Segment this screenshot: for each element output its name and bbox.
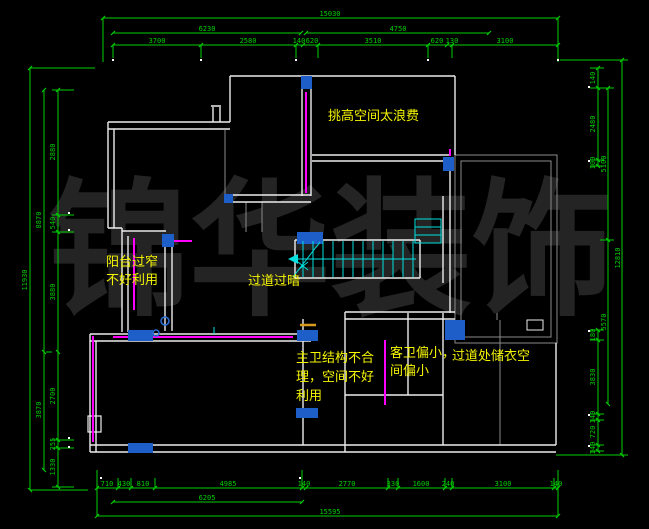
ref-dot [68,229,70,231]
blue-fill [445,320,465,340]
dim-label: 620 [306,37,319,45]
ref-dot [299,477,301,479]
annotation-master-bath-2: 理，空间不好 [296,370,374,385]
dim-label: 240 [442,480,455,488]
ref-dot [588,445,590,447]
dim-label: 430 [118,480,131,488]
dim-label: 2880 [49,144,57,161]
blue-fill [128,443,153,453]
ref-dot [295,59,297,61]
annotation-balcony-2: 不好利用 [106,273,158,288]
dim-label: 3700 [149,37,166,45]
ref-dot [588,86,590,88]
dim-label: 140 [589,72,597,85]
dim-label: 5100 [600,156,608,173]
annotation-guest-bath-2: 间偏小 [390,364,429,379]
dim-label: 100 [589,157,597,170]
blue-fill [443,157,454,171]
annotation-master-bath-3: 利用 [296,389,322,404]
ref-dot [588,414,590,416]
dim-label: 3870 [35,402,43,419]
dim-label: 4750 [390,25,407,33]
dim-label: 2770 [339,480,356,488]
ref-dot [112,59,114,61]
dim-label: 3510 [365,37,382,45]
dim-label: 330 [387,480,400,488]
dim-label: 710 [101,480,114,488]
dim-label: 180 [589,329,597,342]
ref-dot [68,437,70,439]
blue-fill [301,76,312,89]
blue-fill [297,232,323,244]
dim-label: 4985 [220,480,237,488]
dim-label: 6230 [199,25,216,33]
ref-dot [588,160,590,162]
dim-label: 140 [589,442,597,455]
dim-label-right-outer: 12810 [614,247,622,268]
ref-dot [588,330,590,332]
watermark-text: 锦华装饰 [48,163,613,337]
dim-label: 2480 [589,116,597,133]
cad-drawing-canvas: 锦华装饰 15030 6230 4750 3700 2580 140 620 3… [0,0,649,529]
dim-label-left-outer: 11930 [21,269,29,290]
dim-label: 1600 [413,480,430,488]
dim-label: 810 [137,480,150,488]
annotation-balcony-1: 阳台过窄 [106,254,158,270]
dim-label: 540 [49,217,57,230]
blue-fill [224,194,233,203]
dim-label: 720 [589,426,597,439]
annotation-master-bath-1: 主卫结构不合 [296,351,374,366]
dim-label: 3100 [497,37,514,45]
annotation-corridor-dark: 过道过暗 [248,274,300,289]
dim-label: 620 [431,37,444,45]
dim-label: 140 [550,480,563,488]
blue-fill [296,408,318,418]
dim-label-top-total: 15030 [319,10,340,18]
dim-top-lines [103,18,558,62]
dim-label: 140 [589,411,597,424]
dim-label: 255 [49,438,57,451]
dim-label: 8870 [35,212,43,229]
dim-label: 6205 [199,494,216,502]
dim-label: 2700 [49,388,57,405]
ref-dot [68,212,70,214]
dim-label: 3880 [49,284,57,301]
ref-dot [557,59,559,61]
blue-fill [128,330,153,341]
ref-dot [200,59,202,61]
blue-fill [297,330,318,341]
annotation-high-ceiling: 挑高空间太浪费 [328,108,419,124]
dim-label: 3830 [589,369,597,386]
dim-label: 3100 [495,480,512,488]
dim-label: 130 [446,37,459,45]
floor-plan-svg: 锦华装饰 15030 6230 4750 3700 2580 140 620 3… [0,0,649,529]
dim-label: 140 [298,480,311,488]
blue-fill [162,234,174,247]
dim-label: 5570 [600,314,608,331]
dim-label: 1330 [49,459,57,476]
annotation-guest-bath-1: 客卫偏小， [390,345,455,361]
ref-dot [427,59,429,61]
dim-label: 2580 [240,37,257,45]
ref-dot [100,477,102,479]
annotation-closet: 过道处储衣空 [452,348,530,364]
ref-dot [68,446,70,448]
dim-label-bottom-total: 15595 [319,508,340,516]
dim-label: 140 [293,37,306,45]
